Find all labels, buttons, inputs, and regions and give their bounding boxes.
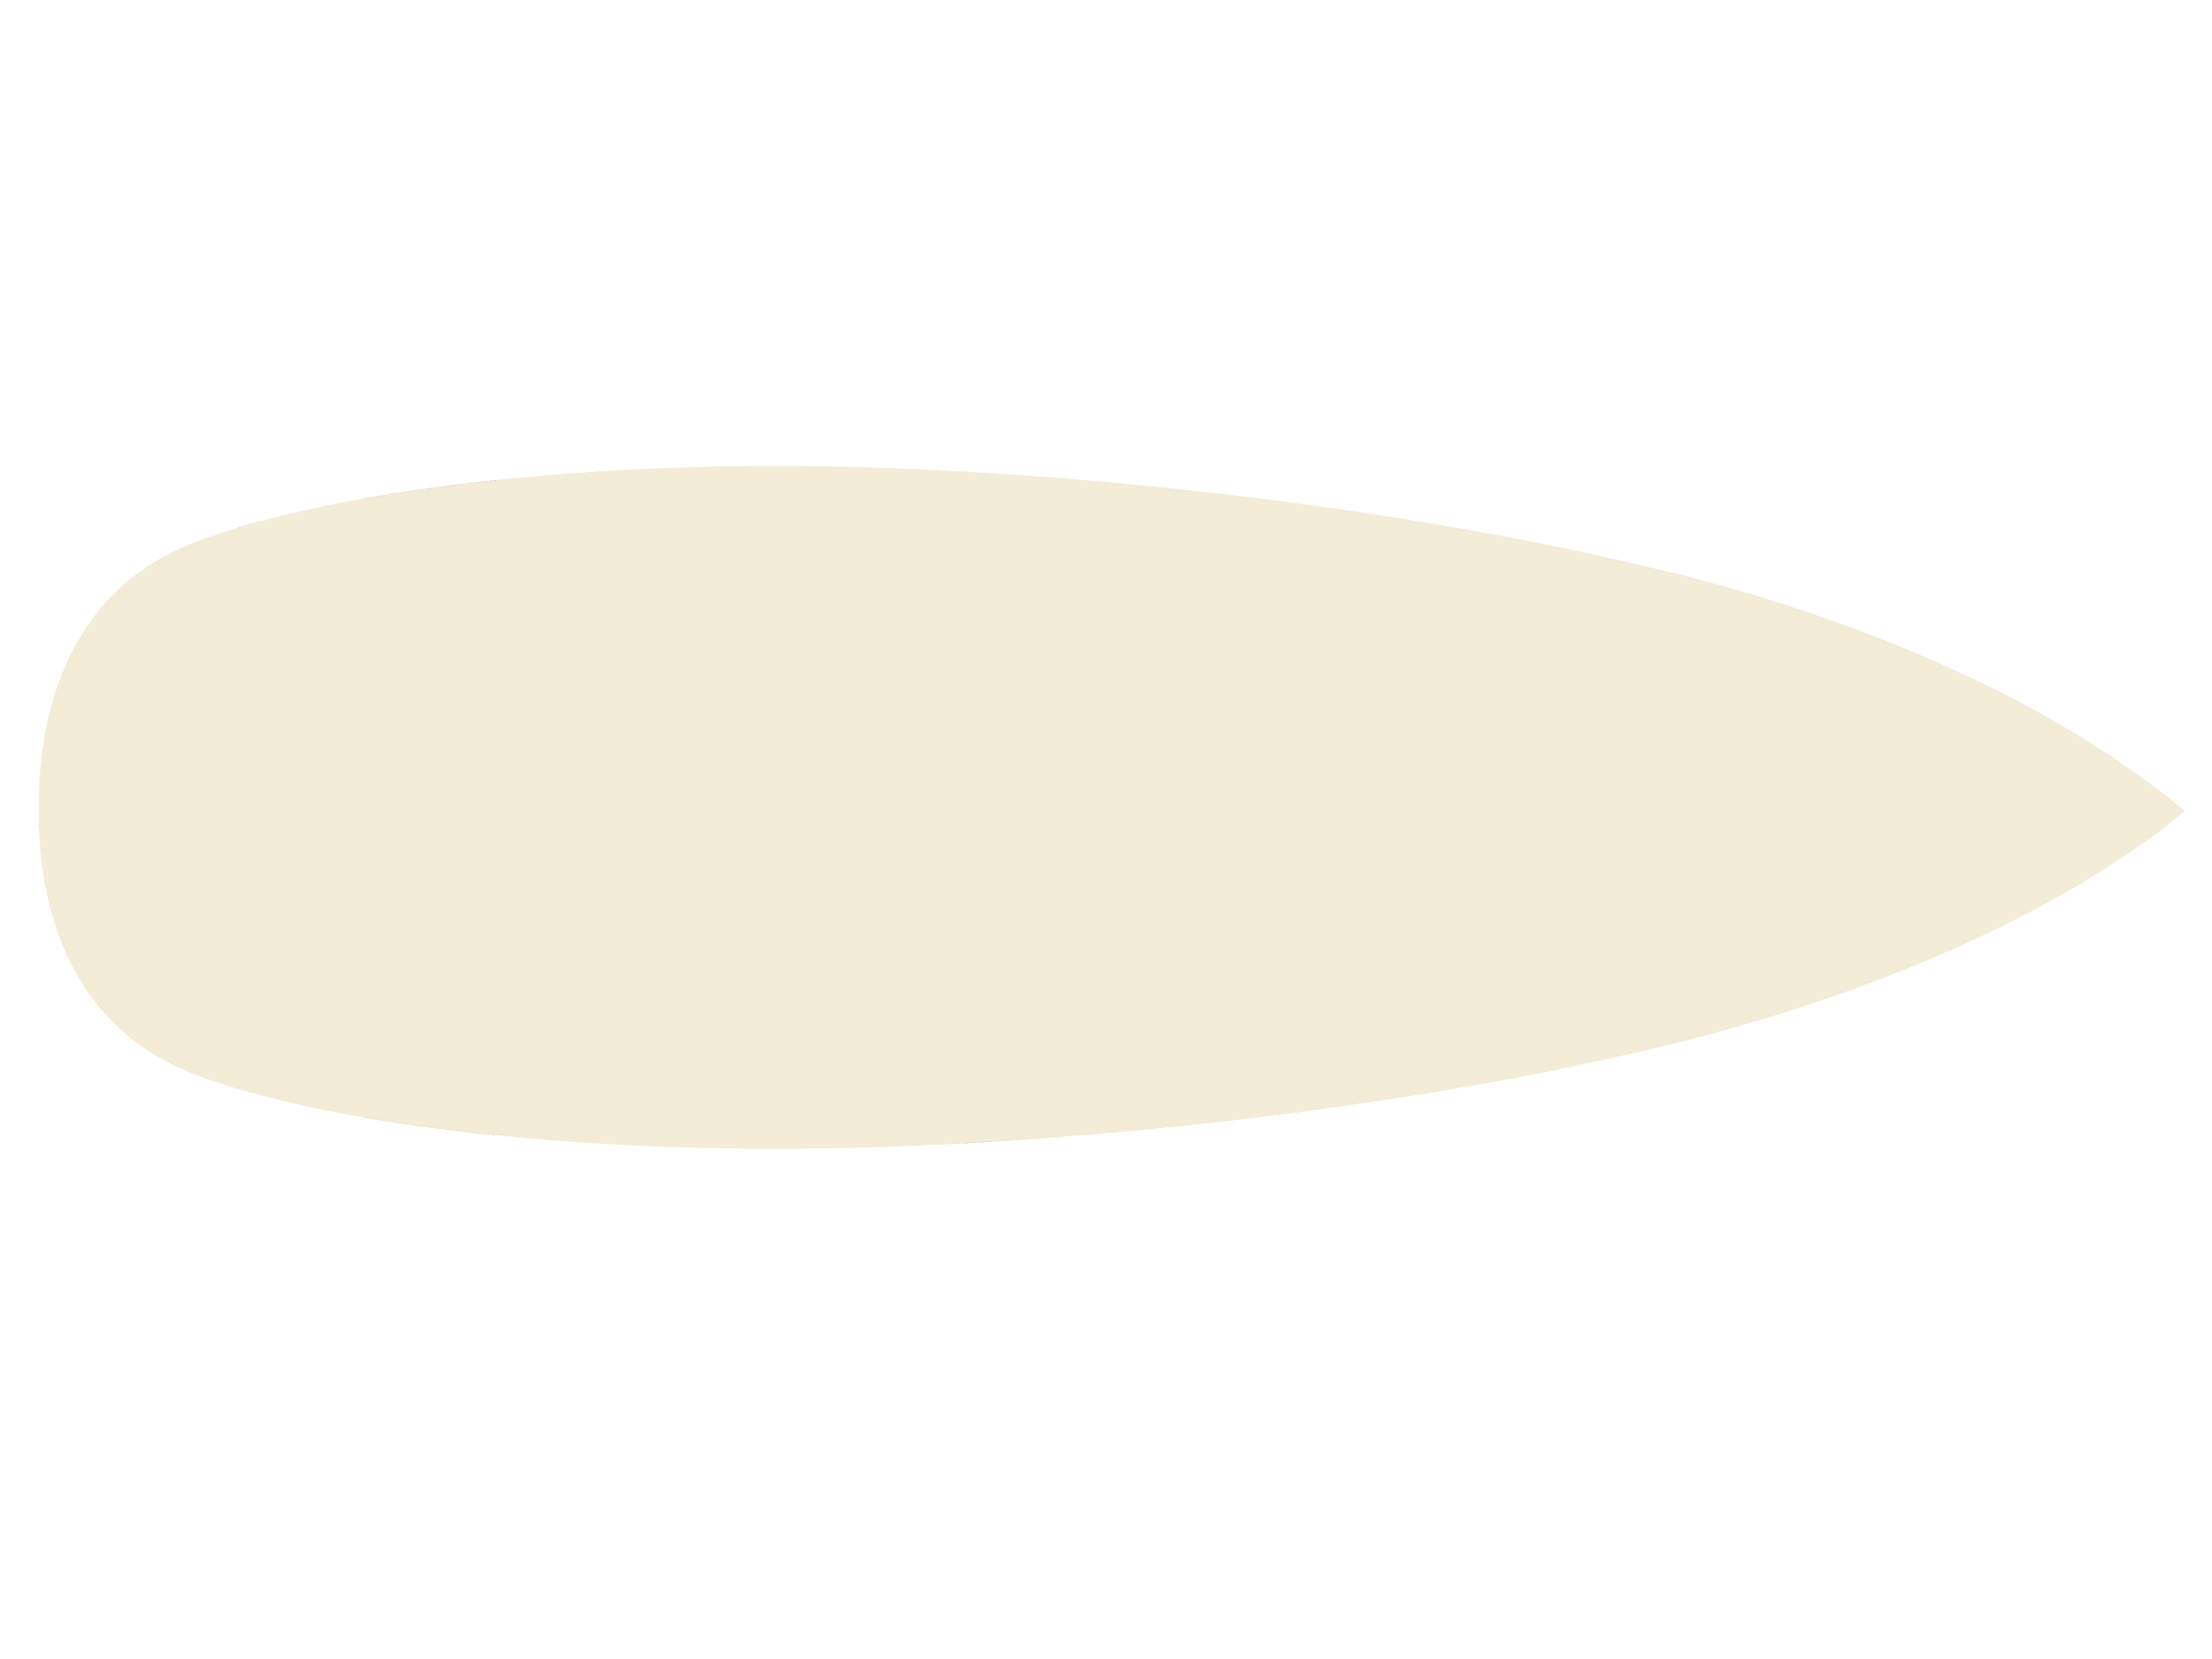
hull-outline: [39, 466, 2184, 1149]
floorplan-svg: [0, 0, 2212, 1659]
yacht-floorplan-page: [0, 0, 2212, 1659]
